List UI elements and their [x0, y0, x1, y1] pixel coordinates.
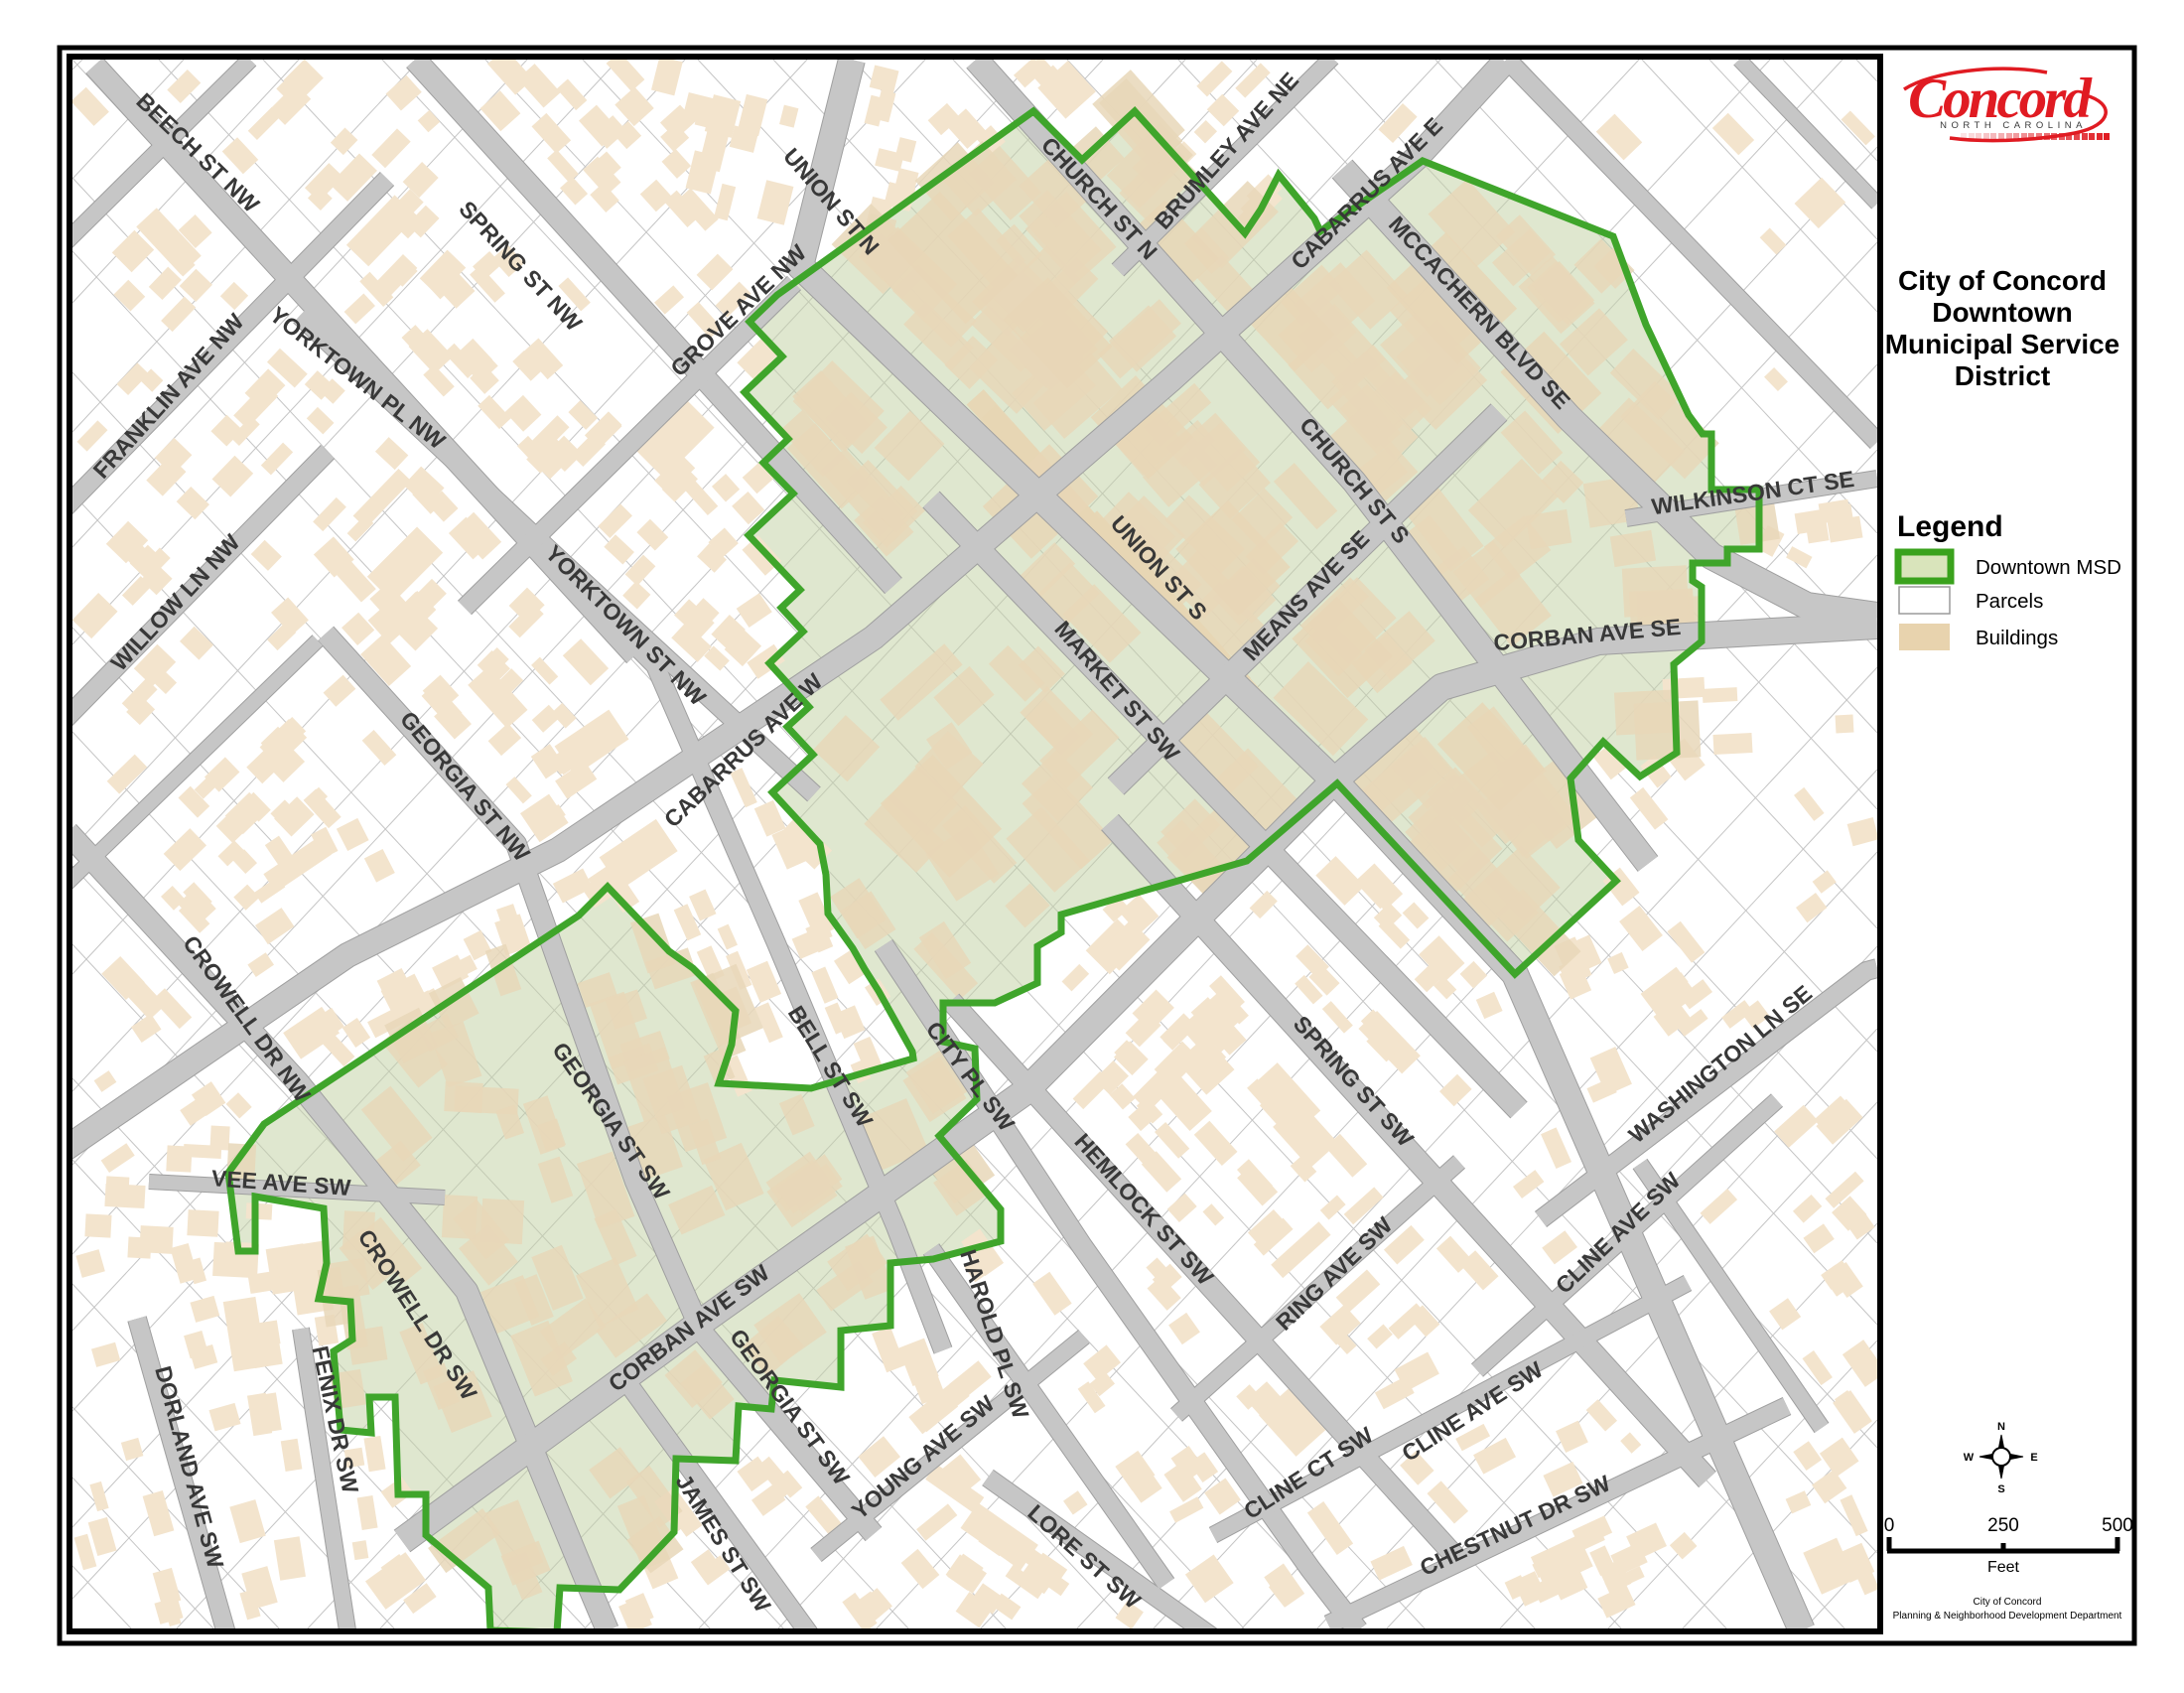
svg-text:Buildings: Buildings — [1976, 627, 2058, 649]
svg-text:City of Concord: City of Concord — [1898, 265, 2107, 296]
svg-text:W: W — [1964, 1452, 1975, 1464]
svg-text:Planning & Neighborhood Develo: Planning & Neighborhood Development Depa… — [1893, 1611, 2122, 1622]
svg-text:Downtown MSD: Downtown MSD — [1976, 556, 2121, 579]
svg-text:District: District — [1955, 360, 2050, 391]
svg-text:500: 500 — [2102, 1515, 2133, 1536]
svg-text:Downtown: Downtown — [1932, 297, 2073, 328]
svg-text:Feet: Feet — [1987, 1559, 2020, 1576]
svg-text:0: 0 — [1884, 1515, 1895, 1536]
svg-text:NORTH CAROLINA: NORTH CAROLINA — [1940, 120, 2087, 131]
svg-text:E: E — [2030, 1452, 2037, 1464]
svg-text:Parcels: Parcels — [1976, 590, 2043, 613]
svg-text:City of Concord: City of Concord — [1974, 1597, 2042, 1608]
svg-text:S: S — [1997, 1483, 2004, 1495]
svg-text:250: 250 — [1987, 1515, 2019, 1536]
svg-text:Legend: Legend — [1897, 510, 2003, 543]
svg-text:Municipal Service: Municipal Service — [1885, 329, 2120, 359]
svg-text:N: N — [1997, 1421, 2005, 1433]
